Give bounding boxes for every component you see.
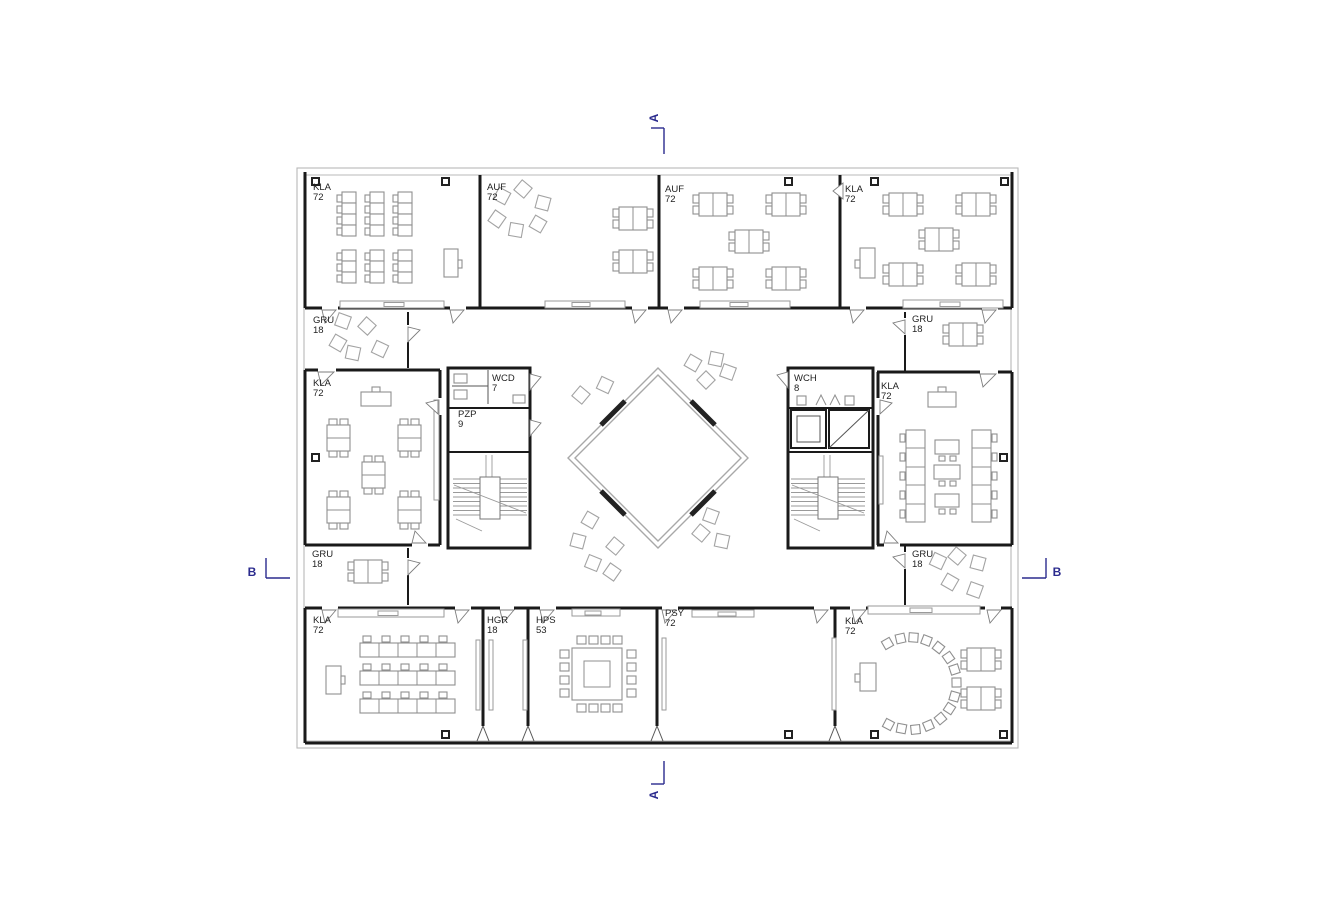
- room-label-kla-top-left: KLA 72: [313, 182, 332, 203]
- room-label-gru-lower-left: GRU 18: [312, 549, 333, 570]
- desk-row-right: [972, 430, 997, 522]
- section-letter: A: [647, 790, 661, 799]
- room-label-kla-bottom-left: KLA 72: [313, 615, 332, 636]
- room-area: 18: [312, 559, 323, 570]
- room-area: 18: [912, 559, 923, 570]
- elevator: [791, 410, 826, 448]
- room-area: 18: [912, 324, 923, 335]
- room-label-gru-upper-right: GRU 18: [912, 314, 933, 335]
- room-area: 8: [794, 383, 799, 394]
- room-label-hps: HPS 53: [536, 615, 556, 636]
- room-label-psy: PSY 72: [665, 608, 685, 629]
- room-area: 18: [487, 625, 498, 636]
- core-left: [448, 368, 530, 548]
- room-label-kla-top-right: KLA 72: [845, 184, 864, 205]
- room-label-wcd: WCD 7: [492, 373, 515, 394]
- floor-plan-page: KLA 72 AUF 72 AUF 72 KLA 72 GRU 18 GRU 1…: [0, 0, 1324, 916]
- room-area: 72: [881, 391, 892, 402]
- shaft: [829, 410, 869, 448]
- room-label-pzp: PZP 9: [458, 409, 476, 430]
- furniture-middle-rooms: [327, 387, 997, 529]
- core-right: [788, 368, 873, 548]
- section-marker-b-right: B: [1022, 558, 1062, 579]
- atrium-void: [568, 351, 748, 581]
- section-marker-b-left: B: [248, 558, 290, 579]
- room-label-auf-2: AUF 72: [665, 184, 684, 205]
- room-label-kla-mid-left: KLA 72: [313, 378, 332, 399]
- conference-table: [560, 636, 636, 712]
- room-area: 7: [492, 383, 497, 394]
- desk-row-left: [900, 430, 925, 522]
- room-area: 72: [313, 625, 324, 636]
- room-area: 72: [313, 388, 324, 399]
- section-marker-a-top: A: [647, 113, 664, 154]
- room-area: 72: [665, 194, 676, 205]
- room-label-kla-bottom-right: KLA 72: [845, 616, 864, 637]
- room-area: 72: [845, 626, 856, 637]
- room-area: 72: [487, 192, 498, 203]
- section-marker-a-bottom: A: [647, 761, 664, 799]
- room-label-gru-upper-left: GRU 18: [313, 315, 334, 336]
- section-letter: B: [248, 565, 257, 579]
- room-area: 9: [458, 419, 463, 430]
- room-label-hgr: HGR 18: [487, 615, 508, 636]
- floor-plan-canvas: KLA 72 AUF 72 AUF 72 KLA 72 GRU 18 GRU 1…: [0, 0, 1324, 916]
- room-area: 18: [313, 325, 324, 336]
- room-area: 72: [665, 618, 676, 629]
- horseshoe-chairs: [881, 633, 961, 735]
- section-letter: A: [647, 113, 661, 122]
- room-area: 72: [845, 194, 856, 205]
- room-label-wch: WCH 8: [794, 373, 817, 394]
- section-letter: B: [1053, 565, 1062, 579]
- room-label-kla-mid-right: KLA 72: [881, 381, 900, 402]
- room-area: 53: [536, 625, 547, 636]
- room-area: 72: [313, 192, 324, 203]
- room-label-gru-lower-right: GRU 18: [912, 549, 933, 570]
- furniture-gru-rooms: [329, 313, 986, 599]
